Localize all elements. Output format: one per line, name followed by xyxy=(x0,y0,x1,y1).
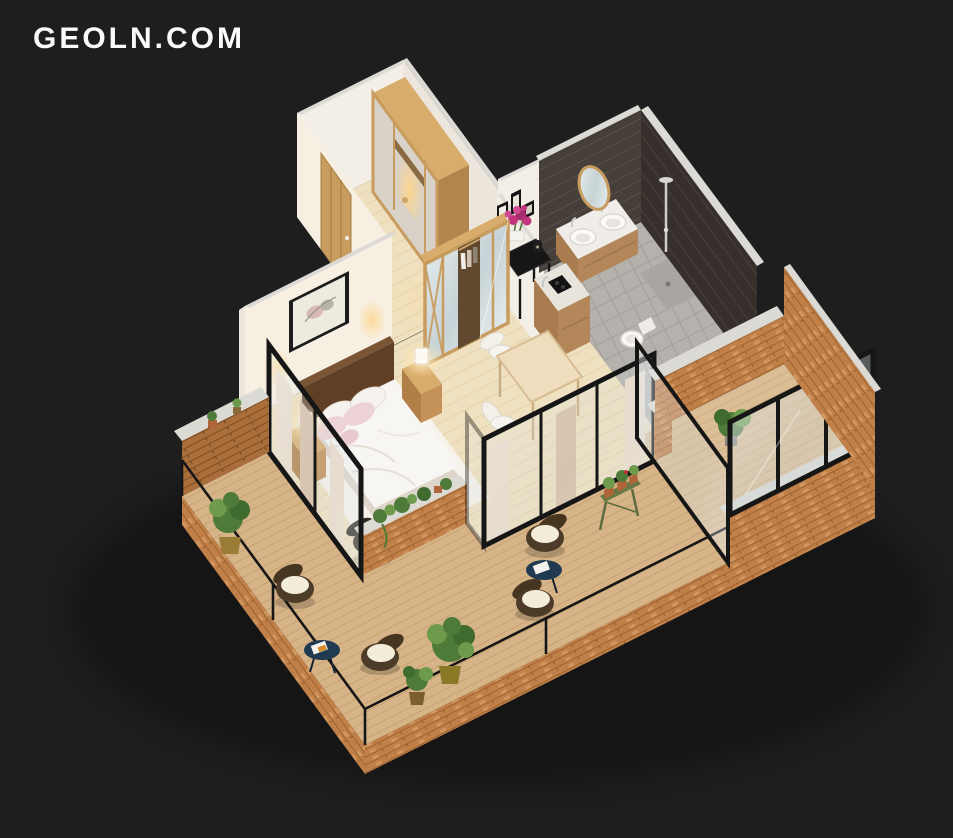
clay-pot-icon xyxy=(208,420,217,428)
drain-icon xyxy=(666,282,671,287)
olive-pot-icon xyxy=(439,666,461,684)
door-handle-icon xyxy=(345,236,349,240)
floor-plan-scene xyxy=(0,0,953,838)
candle-lantern xyxy=(533,240,542,253)
clay-pot-icon xyxy=(434,486,442,493)
clay-pot-icon xyxy=(233,407,241,414)
table-lamp-icon xyxy=(415,348,428,364)
geoln-logo: GEOLN.COM xyxy=(33,22,245,56)
brass-pot-icon xyxy=(219,537,241,554)
glass-jog-panel xyxy=(467,416,484,546)
planter-box-icon xyxy=(509,231,524,241)
floor-plan-render-page: GEOLN.COM xyxy=(0,0,953,838)
wall-sconce-glow-icon xyxy=(358,300,386,340)
shower-head-icon xyxy=(659,177,673,183)
